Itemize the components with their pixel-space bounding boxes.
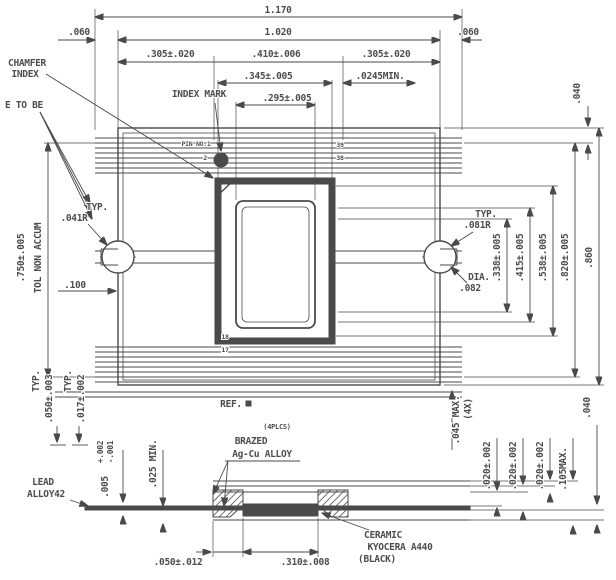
ref-symbol: [246, 401, 251, 406]
drawing-canvas: 1.170.0601.020.060.305±.020.410±.006.305…: [0, 0, 616, 580]
top-view: [95, 128, 462, 385]
pin-number-38: 38: [336, 154, 344, 162]
dim-lead-zone-left: .305±.020: [146, 49, 195, 60]
dim-025-min: .025 MIN.: [148, 440, 159, 489]
dim-center-zone: .410±.006: [252, 49, 301, 60]
typ-left: TYP.: [86, 202, 108, 213]
pin-number-17: 17: [221, 346, 229, 354]
pin1-index-dot: [214, 153, 228, 167]
dim-lead-zone-right: .305±.020: [362, 49, 411, 60]
dim-cavity-inner-width: .295±.005: [263, 93, 312, 104]
callout-pin-no1: PIN NO.1: [182, 140, 211, 148]
dim-820: .820±.005: [560, 233, 571, 282]
lead-lines-bottom: [95, 347, 462, 382]
dim-750: .750±.005: [16, 233, 27, 282]
dim-020-002-b: .020±.002: [508, 442, 519, 491]
dim-045-max: .045 MAX.: [451, 396, 462, 445]
dim-cavity-outer-width: .345±.005: [244, 71, 293, 82]
dim-040-top: .040: [572, 83, 583, 105]
dim-105-max: .105MAX.: [558, 447, 569, 490]
typ-bottom-1: TYP.: [31, 370, 42, 392]
label-kyocera-a440: KYOCERA A440: [367, 542, 433, 553]
dim-040-bottom: .040: [582, 397, 593, 419]
ceramic-body-black: [243, 504, 318, 516]
dim-338: .338±.005: [492, 233, 503, 282]
dim-margin-right: .060: [457, 27, 479, 38]
dim-005: .005: [100, 476, 111, 498]
braze-pad-left: [213, 490, 243, 517]
dim-body-width: 1.020: [264, 27, 292, 38]
engineering-drawing: 1.170.0601.020.060.305±.020.410±.006.305…: [0, 0, 616, 580]
label-alloy42: ALLOY42: [27, 489, 65, 500]
qty-4x: (4X): [463, 398, 474, 420]
dim-050-012: .050±.012: [154, 557, 203, 568]
label-black: (BLACK): [358, 554, 396, 565]
label-dia: DIA.: [468, 272, 490, 283]
note-tol-non-accum: TOL NON ACCUM: [33, 222, 44, 293]
callout-index-mark: INDEX MARK: [172, 89, 227, 100]
dim-415: .415±.005: [515, 233, 526, 282]
cavity-window: [236, 201, 315, 328]
dim-020-002-c: .020±.002: [535, 442, 546, 491]
tol-plus-002: +.002: [96, 440, 105, 463]
dim-860: .860: [584, 247, 595, 269]
dim-overall-width: 1.170: [264, 5, 292, 16]
dim-margin-left: .060: [68, 27, 90, 38]
lead-lines-top: [95, 138, 462, 173]
callout-chamfer: CHAMFER: [8, 58, 47, 69]
pin-number-39: 39: [336, 141, 344, 149]
dim-100: .100: [64, 280, 86, 291]
label-agcu-alloy: Ag-Cu ALLOY: [232, 449, 292, 460]
note-4plcs: (4PLCS): [263, 423, 290, 431]
typ-right: TYP.: [475, 209, 497, 220]
label-lead: LEAD: [32, 477, 54, 488]
dim-dia-082: .082: [459, 283, 481, 294]
dim-020-002-a: .020±.002: [482, 442, 493, 491]
tol-minus-001: -.001: [106, 440, 115, 463]
label-brazed: BRAZED: [235, 436, 268, 447]
dim-050-003: .050±.003: [44, 374, 55, 423]
dim-310-008: .310±.008: [281, 557, 330, 568]
right-hole-feature: [422, 237, 458, 277]
dim-radius-041: .041R: [60, 213, 88, 224]
dim-min-clearance: .0245MIN.: [356, 71, 405, 82]
pin-number-2: 2: [203, 154, 207, 162]
dim-017-002: .017±.002: [76, 375, 87, 424]
typ-bottom-2: TYP.: [63, 370, 74, 392]
dim-radius-081: .081R: [463, 220, 491, 231]
callout-index: INDEX: [11, 69, 39, 80]
label-ref: REF.: [220, 399, 242, 410]
callout-e-to-be: E TO BE: [5, 100, 44, 111]
dim-538: .538±.005: [538, 233, 549, 282]
label-ceramic: CERAMIC: [364, 530, 403, 541]
pin-number-18: 18: [221, 333, 229, 341]
